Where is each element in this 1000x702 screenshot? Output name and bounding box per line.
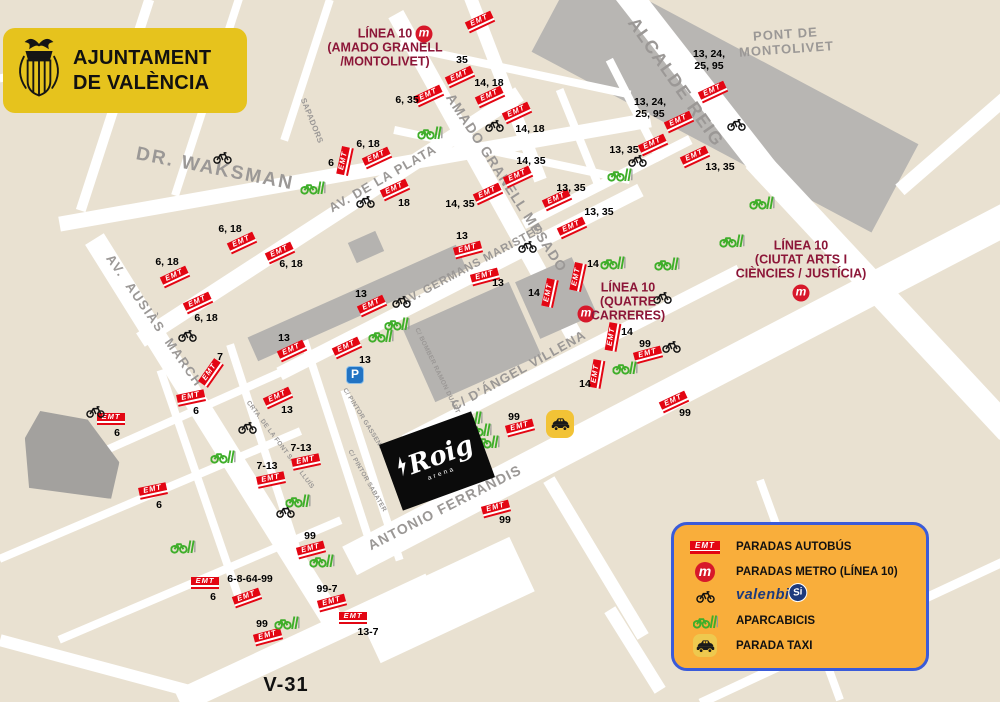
bicycle-glyph (662, 340, 681, 353)
bicycle-glyph (696, 590, 715, 603)
bike-parking-icon (310, 552, 335, 568)
bus-line-numbers: 13 (359, 354, 371, 366)
bus-line-numbers: 6 (156, 499, 162, 511)
bicycle-glyph (238, 421, 257, 434)
bus-line-numbers: 35 (456, 54, 468, 66)
bike-rack-glyph (418, 124, 443, 140)
bike-parking-icon (418, 124, 443, 140)
emt-logo-underline (339, 622, 367, 625)
emt-icon: EMT (686, 541, 724, 554)
bus-line-numbers: 6 (114, 427, 120, 439)
bus-line-numbers: 14 (621, 326, 633, 338)
street-label: V-31 (263, 674, 308, 696)
bike-rack-glyph (693, 613, 718, 629)
bicycle-glyph (392, 295, 411, 308)
bus-line-numbers: 6-8-64-99 (227, 573, 273, 585)
bike-parking-icon (608, 166, 633, 182)
valenbisi-logo: valenbiSi (736, 586, 808, 606)
bus-line-numbers: 13 (278, 332, 290, 344)
bike-rack-glyph (608, 166, 633, 182)
bike-parking-icon (369, 327, 394, 343)
bike-parking-icon (171, 538, 196, 554)
metro-line-label: LÍNEA 10 (AMADO GRANELL /MONTOLIVET) (327, 27, 442, 68)
road (543, 476, 648, 640)
bike-parking-icon (750, 194, 775, 210)
bus-line-numbers: 6, 18 (155, 256, 178, 268)
valenbisi-station-icon (178, 329, 198, 343)
taxi-car-glyph (695, 639, 716, 653)
valenbisi-logo-badge: Si (787, 582, 809, 604)
bus-line-numbers: 18 (398, 197, 410, 209)
bus-line-numbers: 99-7 (316, 583, 337, 595)
bus-line-numbers: 13 (456, 230, 468, 242)
taxi-stand-icon (546, 410, 574, 438)
bus-line-numbers: 13, 35 (584, 206, 613, 218)
emt-logo-underline (97, 423, 125, 426)
bike-parking-icon (286, 492, 311, 508)
valenbisi-station-icon (213, 151, 233, 165)
legend-label: APARCABICIS (736, 615, 815, 627)
bike-rack-glyph (750, 194, 775, 210)
bike-rack-glyph (601, 254, 626, 270)
street-label: AV. AUSIÀS MARCH (103, 252, 206, 390)
bike-rack-glyph (171, 538, 196, 554)
bike-parking-icon (211, 448, 236, 464)
road (0, 634, 202, 699)
bicycle-glyph (213, 151, 232, 164)
emt-bus-stop-badge: EMT (227, 232, 257, 255)
valenbisi-station-icon (86, 405, 106, 419)
bicycle-glyph (727, 118, 746, 131)
bike-rack-glyph (275, 614, 300, 630)
legend-label: PARADAS METRO (LÍNEA 10) (736, 566, 898, 578)
bicycle-glyph (86, 405, 105, 418)
taxi-icon (686, 634, 724, 657)
bus-line-numbers: 13 (492, 277, 504, 289)
aparcabicis-icon (686, 613, 724, 629)
bus-line-numbers: 99 (256, 618, 268, 630)
badge-line1: AJUNTAMENT (73, 46, 211, 70)
emt-logo-text: EMT (339, 612, 367, 620)
bike-parking-icon (613, 359, 638, 375)
bike-rack-glyph (301, 179, 326, 195)
metro-station-icon: m (793, 285, 810, 302)
legend-item-bike: valenbiSi (686, 584, 914, 609)
bicycle-glyph (356, 195, 375, 208)
bus-line-numbers: 6, 35 (395, 94, 418, 106)
taxi-car-glyph (550, 417, 571, 431)
bus-line-numbers: 13, 35 (705, 161, 734, 173)
emt-bus-stop-badge: EMT (605, 322, 622, 352)
map-canvas: DR. WAKSMANAV. AUSIÀS MARCHAV. DE LA PLA… (0, 0, 1000, 702)
bike-parking-icon (655, 255, 680, 271)
ajuntament-badge: AJUNTAMENT DE VALÈNCIA (3, 28, 247, 113)
legend-item-aparcabicis: APARCABICIS (686, 609, 914, 634)
bus-line-numbers: 13 (355, 288, 367, 300)
emt-bus-stop-badge: EMT (191, 577, 219, 589)
emt-bus-stop-badge: EMT (291, 453, 321, 471)
metro-line-label: LÍNEA 10 (CIUTAT ARTS I CIÈNCIES / JUSTÍ… (736, 239, 867, 280)
bus-line-numbers: 14, 35 (445, 198, 474, 210)
legend-item-taxi: PARADA TAXI (686, 633, 914, 658)
valenbisi-station-icon (727, 118, 747, 132)
bus-line-numbers: 13 (281, 404, 293, 416)
emt-logo-text: EMT (191, 577, 219, 585)
valenbisi-station-icon (356, 195, 376, 209)
legend-item-emt: EMTPARADAS AUTOBÚS (686, 535, 914, 560)
badge-line2: DE VALÈNCIA (73, 71, 211, 95)
badge-title: AJUNTAMENT DE VALÈNCIA (73, 46, 211, 95)
bus-line-numbers: 6, 18 (279, 258, 302, 270)
bus-line-numbers: 99 (679, 407, 691, 419)
bus-line-numbers: 13-7 (357, 626, 378, 638)
bus-line-numbers: 6 (193, 405, 199, 417)
emt-logo-underline (191, 587, 219, 590)
bus-line-numbers: 7-13 (256, 460, 277, 472)
parking-icon: P (346, 366, 364, 384)
bike-parking-icon (301, 179, 326, 195)
valenbisi-station-icon (518, 240, 538, 254)
legend-label: PARADAS AUTOBÚS (736, 541, 851, 553)
street-label: SAPADORS (298, 97, 324, 145)
bus-line-numbers: 13, 24, 25, 95 (634, 96, 666, 120)
emt-bus-stop-badge: EMT (160, 266, 190, 289)
bus-line-numbers: 7 (217, 351, 223, 363)
bus-line-numbers: 14 (579, 378, 591, 390)
bus-line-numbers: 99 (639, 338, 651, 350)
bus-line-numbers: 99 (508, 411, 520, 423)
bus-line-numbers: 14, 18 (474, 77, 503, 89)
bus-line-numbers: 6, 18 (356, 138, 379, 150)
legend-panel: EMTPARADAS AUTOBÚSmPARADAS METRO (LÍNEA … (671, 522, 929, 671)
bus-line-numbers: 14, 18 (515, 123, 544, 135)
bus-line-numbers: 13, 24, 25, 95 (693, 48, 725, 72)
bike-rack-glyph (286, 492, 311, 508)
bicycle-glyph (485, 119, 504, 132)
bike-icon (686, 590, 724, 603)
bus-line-numbers: 99 (499, 514, 511, 526)
bus-line-numbers: 7-13 (290, 442, 311, 454)
bike-rack-glyph (369, 327, 394, 343)
bus-line-numbers: 6, 18 (218, 223, 241, 235)
emt-bus-stop-badge: EMT (339, 612, 367, 624)
bike-parking-icon (601, 254, 626, 270)
bike-rack-glyph (211, 448, 236, 464)
bus-line-numbers: 6, 18 (194, 312, 217, 324)
legend-item-metro: mPARADAS METRO (LÍNEA 10) (686, 560, 914, 585)
valenbisi-logo-text: valenbi (736, 587, 789, 603)
emt-bus-stop-badge: EMT (557, 217, 587, 240)
road (58, 113, 651, 232)
metro-icon: m (686, 562, 724, 582)
bicycle-glyph (518, 240, 537, 253)
legend-label: PARADA TAXI (736, 640, 812, 652)
building-block (348, 231, 384, 263)
bus-line-numbers: 99 (304, 530, 316, 542)
bus-line-numbers: 14 (528, 287, 540, 299)
valenbisi-station-icon (485, 119, 505, 133)
emt-bus-stop-badge: EMT (445, 66, 475, 89)
metro-line-label: LÍNEA 10 (QUATRE CARRERES) (591, 281, 665, 322)
bus-line-numbers: 14 (587, 258, 599, 270)
bike-rack-glyph (613, 359, 638, 375)
valenbisi-station-icon (392, 295, 412, 309)
bike-rack-glyph (310, 552, 335, 568)
bus-line-numbers: 6 (328, 157, 334, 169)
bus-line-numbers: 13, 35 (556, 182, 585, 194)
valenbisi-station-icon (662, 340, 682, 354)
emt-bus-stop-badge: EMT (589, 359, 606, 389)
street-label: PONT DE MONTOLIVET (738, 24, 835, 60)
valencia-coat-of-arms-icon (13, 33, 65, 108)
bus-line-numbers: 14, 35 (516, 155, 545, 167)
bike-parking-icon (275, 614, 300, 630)
valenbisi-station-icon (238, 421, 258, 435)
bus-line-numbers: 6 (210, 591, 216, 603)
bicycle-glyph (178, 329, 197, 342)
bike-rack-glyph (655, 255, 680, 271)
